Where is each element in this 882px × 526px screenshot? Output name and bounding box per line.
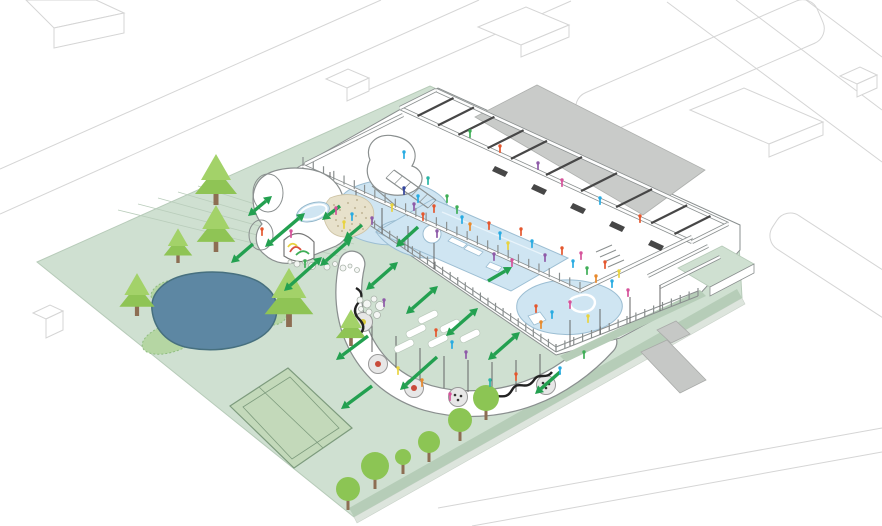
site-plan-canvas: [0, 0, 882, 526]
architectural-axonometric-site-plan: [0, 0, 882, 526]
